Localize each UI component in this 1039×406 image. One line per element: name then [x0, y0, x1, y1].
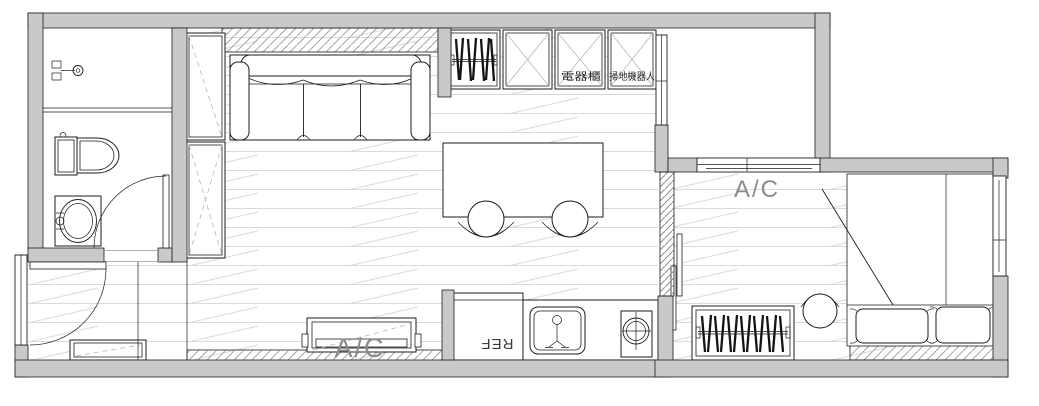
floor-plan-canvas: 電器櫃 掃地機器人 REF — [0, 0, 1039, 406]
wall-bathroom-stub — [158, 248, 172, 262]
wall-bedroom-left — [658, 296, 673, 362]
wall-top-stub — [438, 28, 451, 97]
kitchen: REF — [452, 293, 658, 360]
tall-cabinet — [186, 33, 225, 258]
robot-vacuum-cabinet-label: 掃地機器人 — [609, 70, 655, 83]
wall-bedroom-top — [820, 158, 1008, 172]
double-bed — [822, 174, 996, 346]
wall-kitchen-stub — [442, 290, 454, 360]
wall-bedroom-right-upper — [993, 158, 1008, 178]
cooktop-icon — [621, 311, 652, 357]
wall-bedroom-bottom — [655, 360, 1008, 377]
wall-bathroom-bottom — [28, 248, 104, 262]
window-balcony-left — [656, 35, 667, 125]
window-bedroom-right — [993, 176, 1006, 276]
pillow — [856, 309, 928, 343]
refrigerator: REF — [452, 293, 523, 360]
window-bedroom-top — [697, 158, 820, 172]
wall-top — [28, 13, 830, 28]
wall-corridor-hatched — [660, 172, 674, 296]
refrigerator-label: REF — [481, 335, 514, 352]
ledge-above-sofa — [222, 28, 438, 52]
kitchen-sink-icon — [530, 307, 585, 354]
washbasin-icon — [55, 196, 101, 246]
window-entry-left — [15, 255, 28, 345]
wall-balcony-right — [815, 13, 830, 172]
balcony-floor — [658, 28, 815, 158]
door-leaf — [30, 262, 106, 269]
wardrobe-hangers — [692, 306, 794, 360]
door-leaf — [163, 175, 169, 248]
wall-cabinet-row: 電器櫃 掃地機器人 — [448, 30, 656, 89]
sofa-armrest-right — [411, 62, 430, 140]
wall-bottom-left-unit — [15, 360, 670, 377]
sofa — [230, 55, 430, 140]
floor-plan-drawing: 電器櫃 掃地機器人 REF — [0, 0, 1039, 406]
wall-balcony-left — [655, 125, 668, 172]
hanger-cabinet — [448, 30, 500, 89]
wall-balcony-bottom — [668, 158, 697, 172]
pillow — [936, 307, 990, 343]
appliance-cabinet-label: 電器櫃 — [561, 70, 601, 83]
appliance-cabinet: 電器櫃 — [555, 30, 605, 89]
storage-cabinet-1 — [503, 30, 552, 89]
robot-vacuum-cabinet: 掃地機器人 — [608, 30, 656, 89]
wall-bathroom-right — [172, 28, 187, 262]
ac-label-living: A/C — [334, 333, 385, 363]
wall-left — [28, 13, 43, 250]
ac-label-bedroom: A/C — [734, 176, 780, 203]
sofa-armrest-left — [230, 62, 249, 140]
shoe-bench — [70, 340, 146, 360]
